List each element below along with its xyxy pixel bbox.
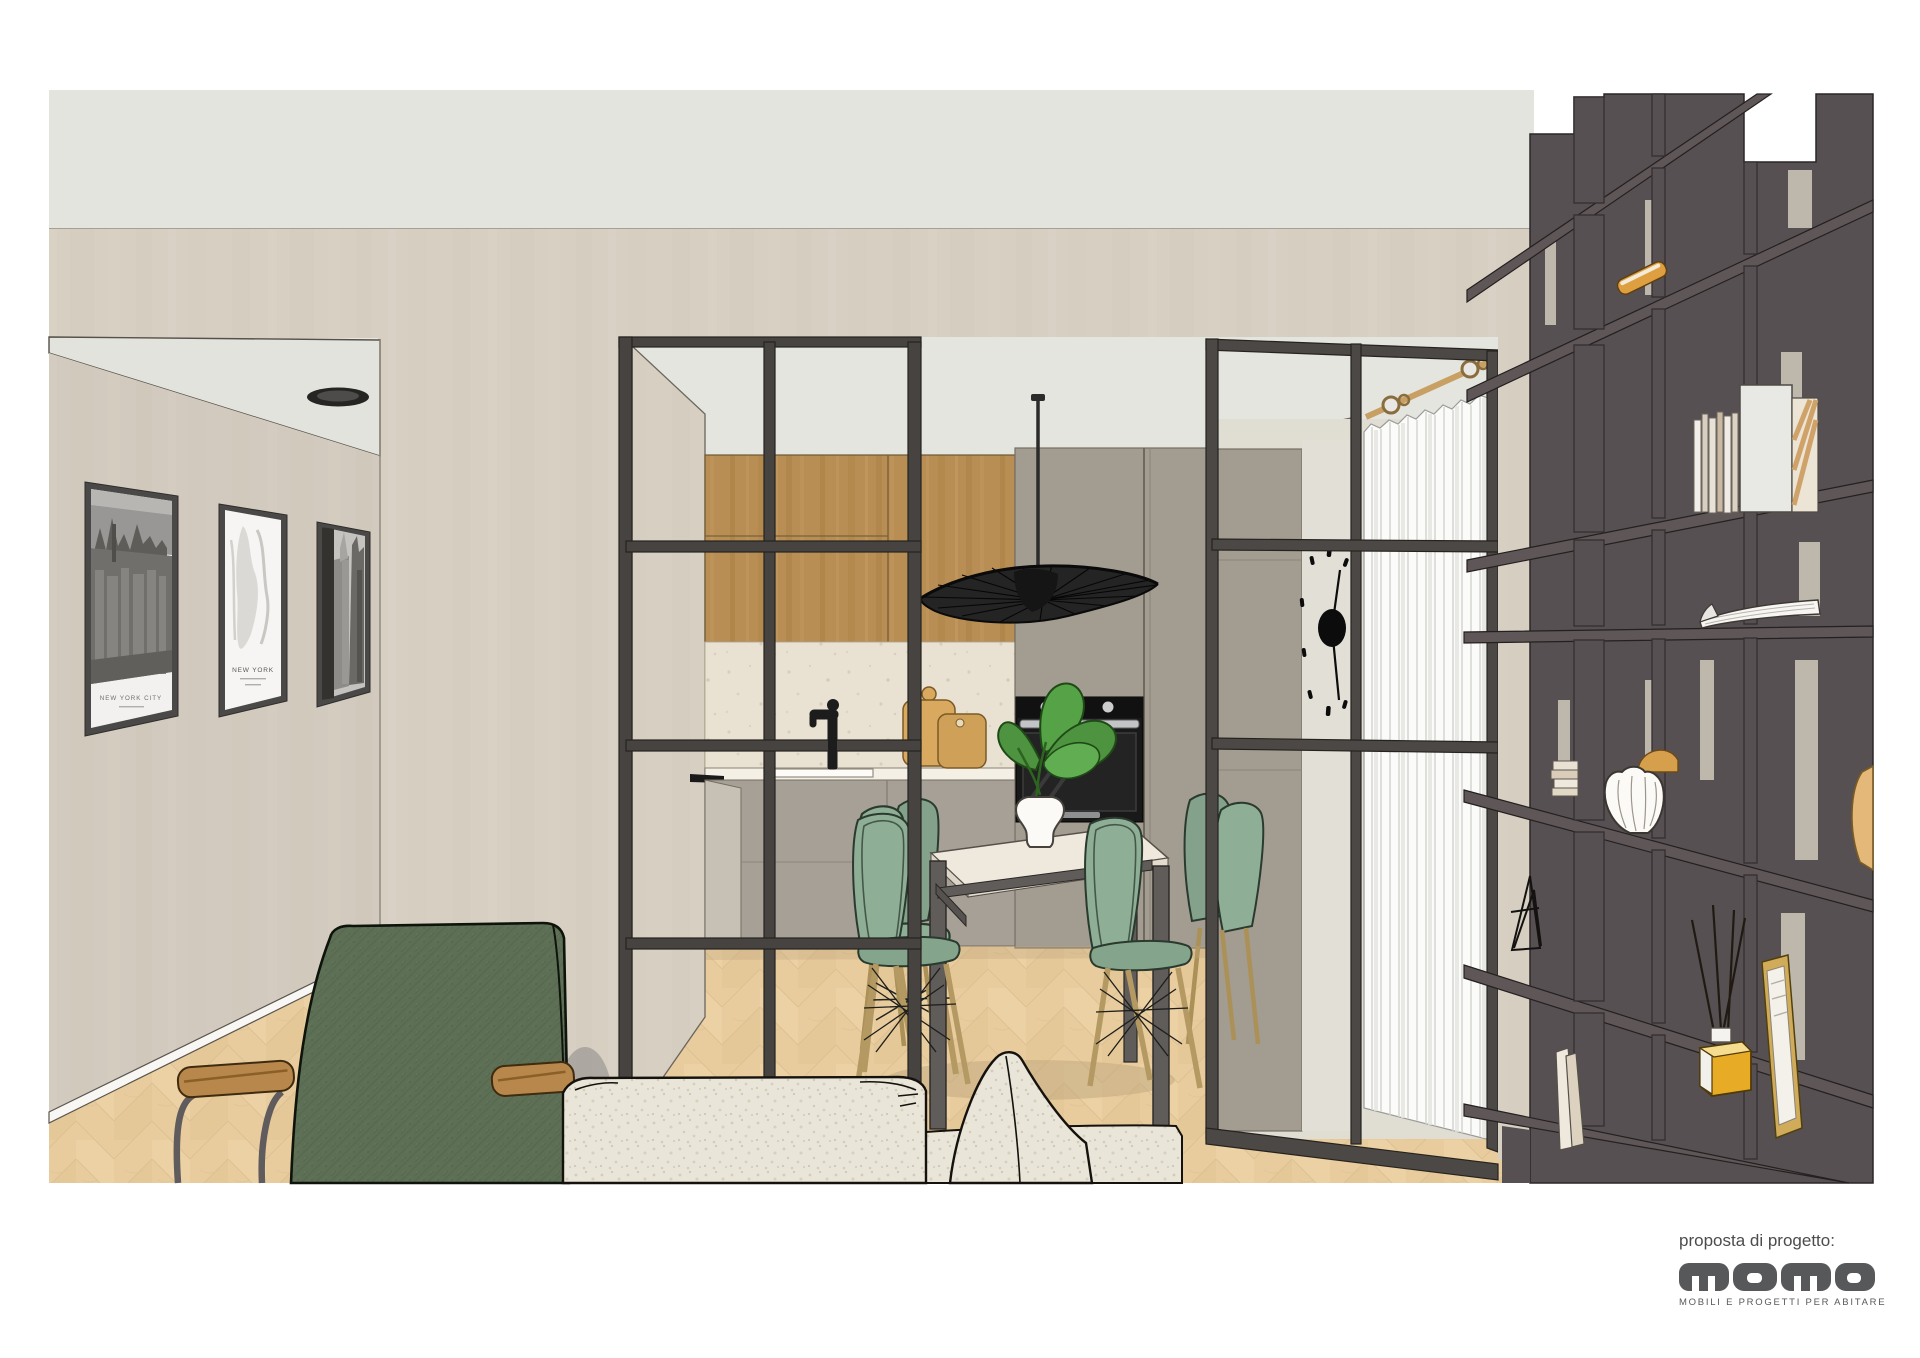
svg-text:NEW YORK CITY: NEW YORK CITY [100,695,162,702]
svg-text:proposta di progetto:: proposta di progetto: [1679,1231,1835,1250]
svg-text:NEW YORK: NEW YORK [232,667,274,674]
svg-text:MOBILI E PROGETTI PER ABITARE: MOBILI E PROGETTI PER ABITARE [1679,1297,1886,1308]
